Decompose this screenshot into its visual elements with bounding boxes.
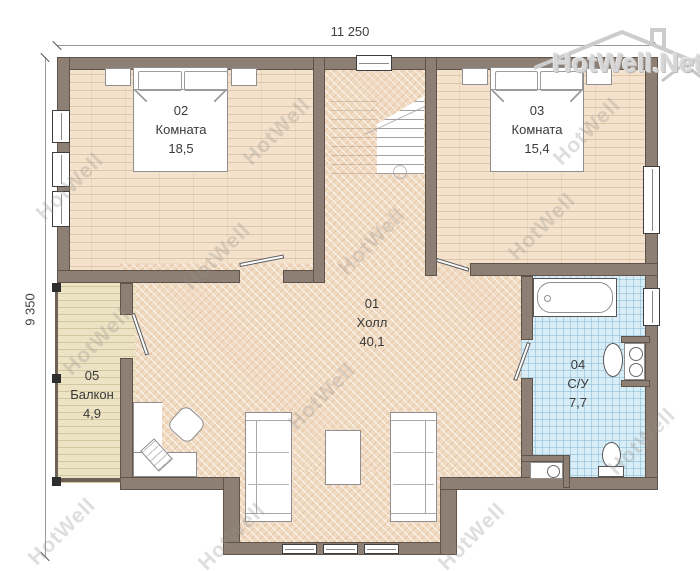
stairs-lower-flight — [331, 98, 377, 174]
dimension-height: 9 350 — [23, 278, 38, 342]
wall-bathroom-left-a — [521, 276, 533, 340]
room-area: 40,1 — [312, 332, 432, 351]
room-name: Комната — [477, 120, 597, 139]
balcony-post — [52, 283, 61, 292]
window — [282, 544, 317, 554]
nightstand — [586, 68, 612, 85]
wall-cabinet-top — [621, 336, 650, 343]
window — [643, 288, 660, 326]
room-number: 05 — [32, 366, 152, 385]
room-name: С/У — [518, 374, 638, 393]
sofa — [245, 412, 292, 522]
nightstand — [231, 68, 257, 86]
toilet-tank — [598, 466, 624, 477]
wall-corridor-right — [425, 57, 437, 276]
bathtub-drain — [544, 295, 551, 302]
stairs-newel-post — [393, 165, 407, 179]
room-number: 03 — [477, 101, 597, 120]
room-area: 7,7 — [518, 393, 638, 412]
window — [52, 110, 70, 143]
wall-corridor-left — [313, 57, 325, 283]
pillow — [138, 71, 182, 91]
room-number: 04 — [518, 355, 638, 374]
room-label-bedroom2: 02 Комната 18,5 — [121, 101, 241, 158]
window — [52, 191, 70, 227]
sofa — [390, 412, 437, 522]
room-name: Холл — [312, 313, 432, 332]
room-number: 02 — [121, 101, 241, 120]
pillow — [540, 71, 583, 91]
room-label-bathroom: 04 С/У 7,7 — [518, 355, 638, 412]
dimension-line-left — [45, 57, 46, 557]
dimension-line-top — [57, 45, 657, 46]
wall-niche-right — [563, 455, 570, 488]
room-label-hall: 01 Холл 40,1 — [312, 294, 432, 351]
window — [643, 166, 660, 234]
room-number: 01 — [312, 294, 432, 313]
room-area: 18,5 — [121, 139, 241, 158]
toilet — [602, 442, 621, 468]
room-area: 15,4 — [477, 139, 597, 158]
wall-hall-left-a — [120, 283, 133, 315]
room-label-bedroom3: 03 Комната 15,4 — [477, 101, 597, 158]
room-name: Балкон — [32, 385, 152, 404]
wall-bedroom3-bottom — [470, 263, 658, 276]
floor-drain — [547, 465, 560, 478]
wall-bottom-left — [120, 477, 240, 490]
nightstand — [105, 68, 131, 86]
window — [52, 152, 70, 187]
pillow — [184, 71, 228, 91]
room-name: Комната — [121, 120, 241, 139]
watermark-text: HotWell — [24, 494, 101, 571]
nightstand — [462, 68, 488, 85]
balcony-post — [52, 477, 61, 486]
coffee-table — [325, 430, 361, 485]
utility-niche — [530, 462, 563, 479]
wall-bedroom2-bottom-a — [57, 270, 240, 283]
bathtub — [533, 278, 617, 317]
window — [364, 544, 399, 554]
balcony-rail-bottom — [55, 478, 121, 482]
floor-plan: 01 Холл 40,1 02 Комната 18,5 03 Комната … — [0, 0, 700, 571]
room-label-balcony: 05 Балкон 4,9 — [32, 366, 152, 423]
dimension-width: 11 250 — [300, 24, 400, 39]
window — [356, 55, 392, 71]
pillow — [495, 71, 538, 91]
room-area: 4,9 — [32, 404, 152, 423]
window — [323, 544, 358, 554]
